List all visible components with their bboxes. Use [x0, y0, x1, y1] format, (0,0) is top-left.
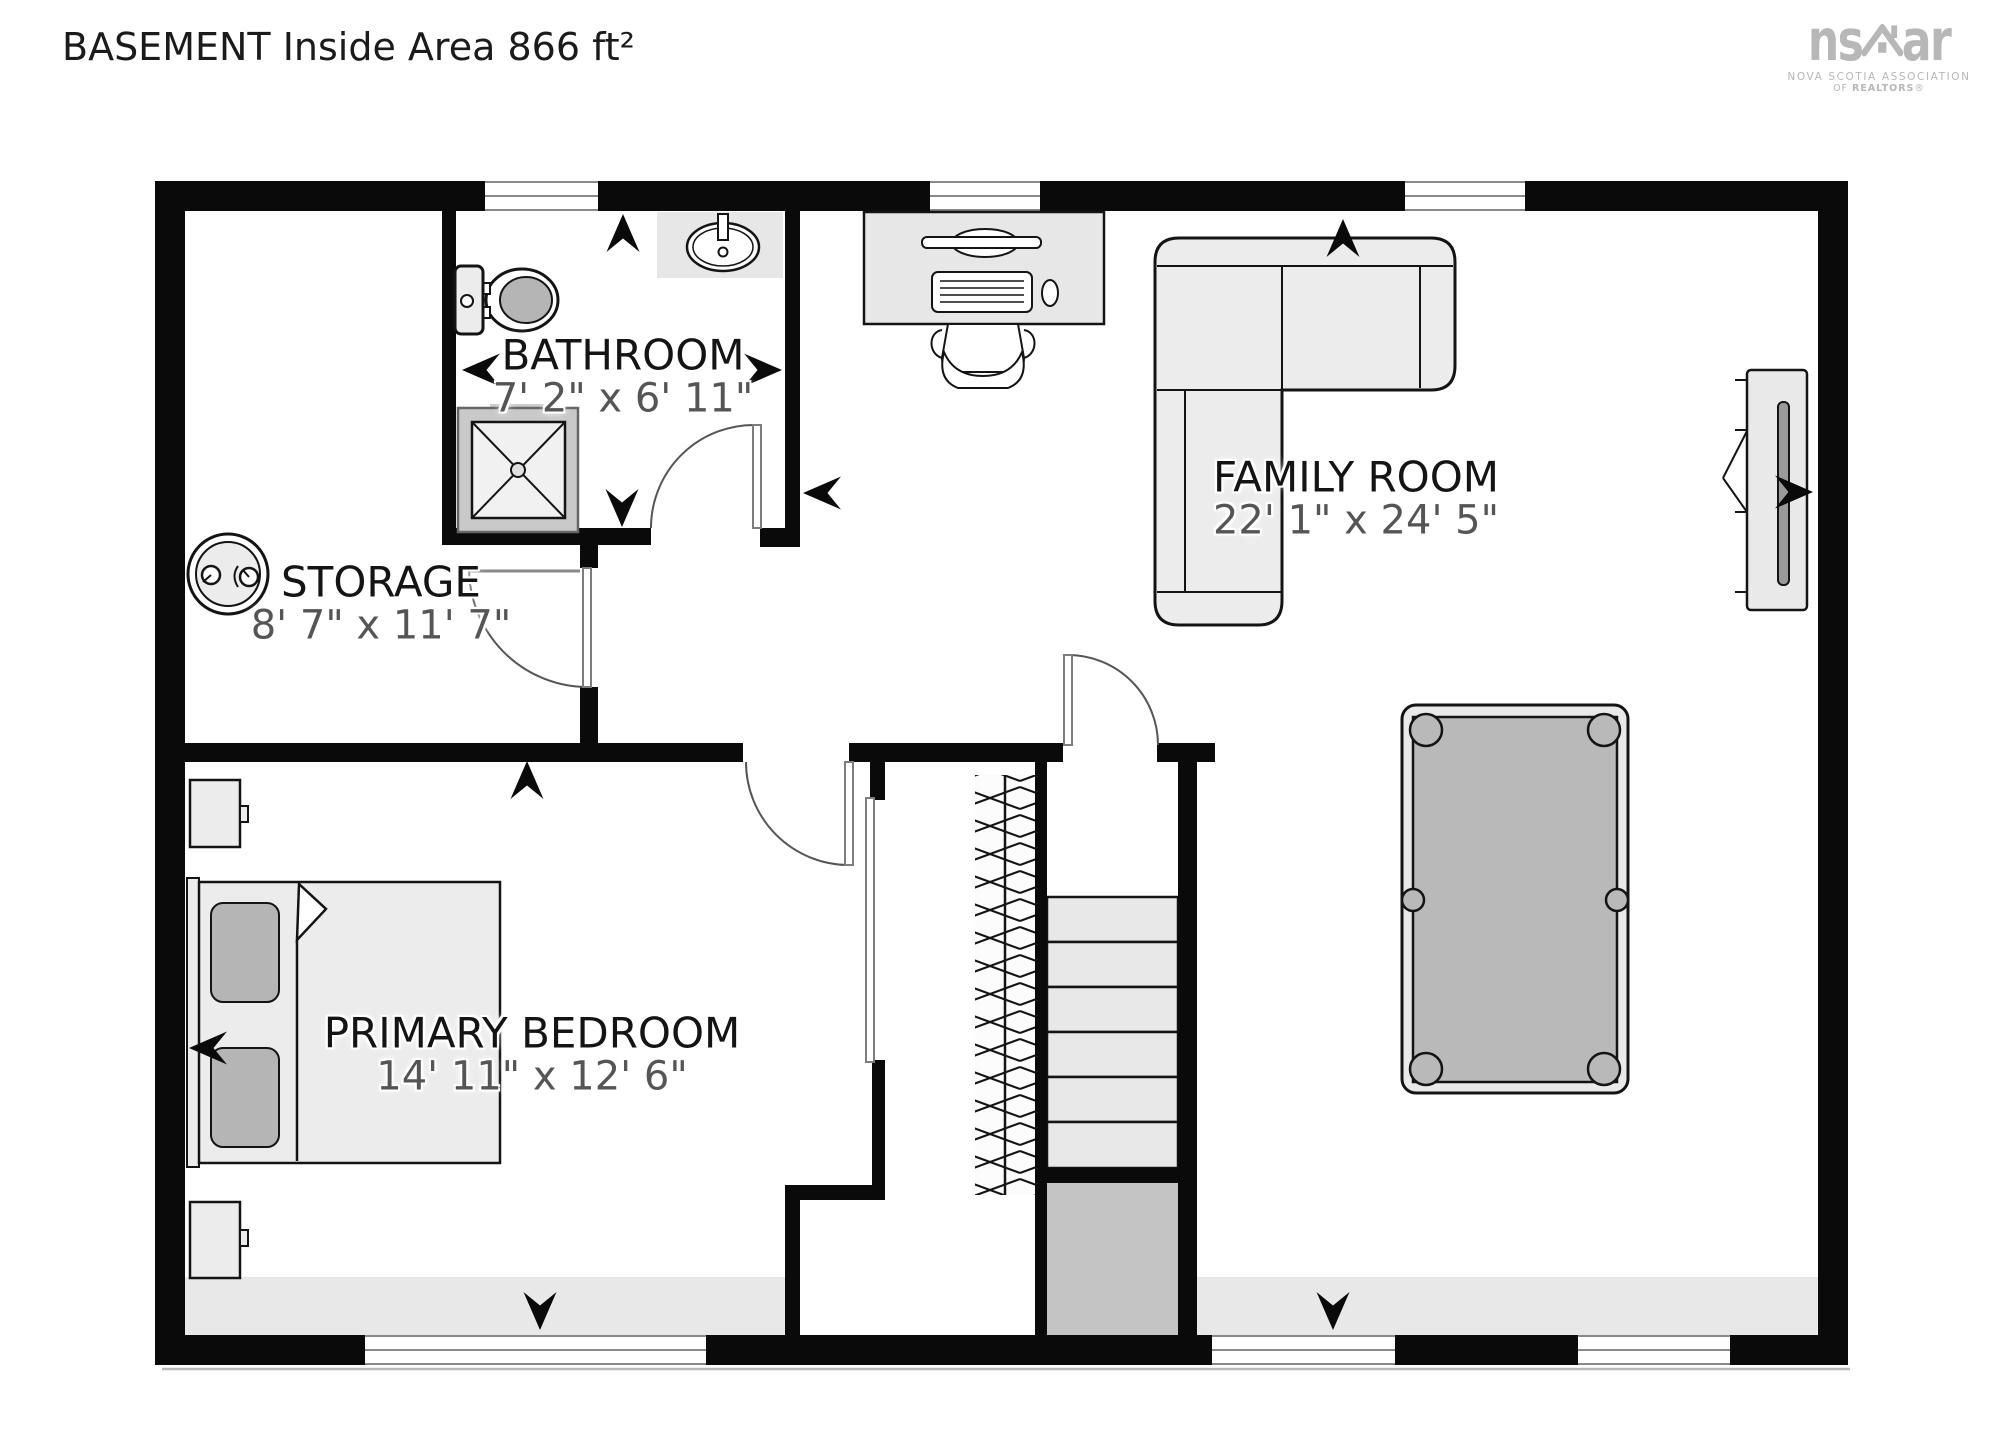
floorplan-drawing: [0, 0, 2000, 1455]
direction-arrow-left: [803, 477, 841, 510]
nightstand-icon: [190, 1202, 248, 1278]
window: [1405, 181, 1525, 211]
sectional-sofa-icon: [1155, 238, 1455, 625]
direction-arrow-down: [606, 489, 639, 527]
nightstand-icon: [190, 780, 248, 847]
pool-table-icon: [1402, 705, 1628, 1093]
room-label-family-room: FAMILY ROOM 22' 1" x 24' 5": [1213, 457, 1499, 542]
room-dimensions: 7' 2" x 6' 11": [493, 377, 754, 419]
room-name: PRIMARY BEDROOM: [324, 1013, 741, 1056]
toilet-icon: [455, 266, 558, 334]
window: [1578, 1335, 1730, 1365]
window: [1212, 1335, 1395, 1365]
room-name: STORAGE: [251, 562, 512, 605]
sink-icon: [657, 212, 783, 278]
room-label-storage: STORAGE 8' 7" x 11' 7": [251, 562, 512, 647]
room-name: BATHROOM: [493, 335, 754, 378]
stair-landing: [1047, 1183, 1178, 1335]
bedroom-door: [746, 762, 853, 865]
bathroom-door: [651, 425, 761, 528]
room-dimensions: 14' 11" x 12' 6": [324, 1055, 741, 1097]
stair-treads: [1047, 897, 1178, 1168]
desk-icon: [864, 212, 1104, 324]
window: [930, 181, 1040, 211]
room-dimensions: 22' 1" x 24' 5": [1213, 499, 1499, 541]
family-room-door: [1064, 655, 1158, 745]
window: [365, 1335, 706, 1365]
window: [485, 181, 598, 211]
room-label-primary-bedroom: PRIMARY BEDROOM 14' 11" x 12' 6": [324, 1013, 741, 1098]
office-chair-icon: [932, 324, 1035, 388]
shower-icon: [458, 404, 578, 532]
room-dimensions: 8' 7" x 11' 7": [251, 604, 512, 646]
stair-railing: [866, 798, 874, 1062]
floor-shading: [185, 1277, 1818, 1335]
room-name: FAMILY ROOM: [1213, 457, 1499, 500]
direction-arrow-up: [511, 761, 544, 799]
room-label-bathroom: BATHROOM 7' 2" x 6' 11": [493, 335, 754, 420]
stairs-icon: [975, 775, 1178, 1335]
direction-arrow-up: [607, 214, 640, 252]
